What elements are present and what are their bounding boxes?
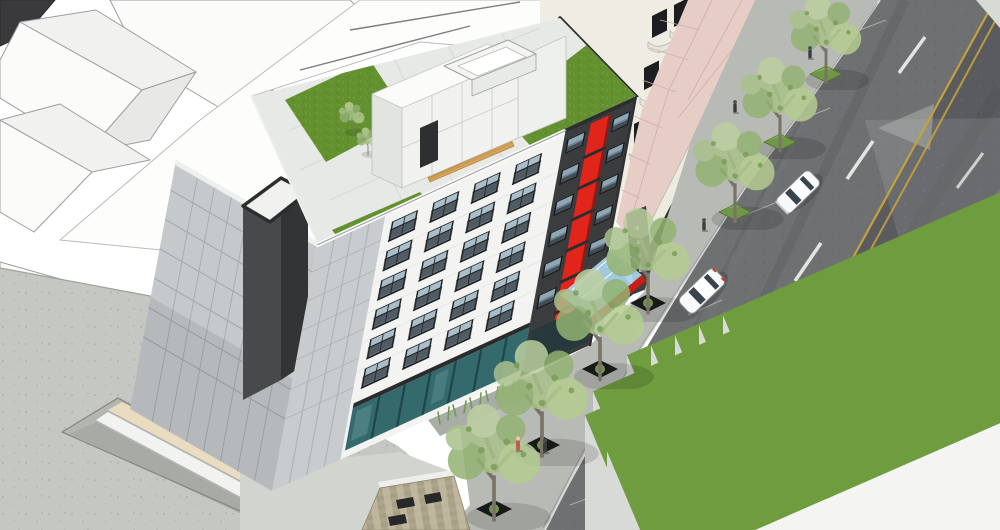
rendering-canvas [0,0,1000,530]
penthouse-door [420,120,438,168]
architectural-rendering: Aerial architectural rendering of a mid-… [0,0,1000,530]
